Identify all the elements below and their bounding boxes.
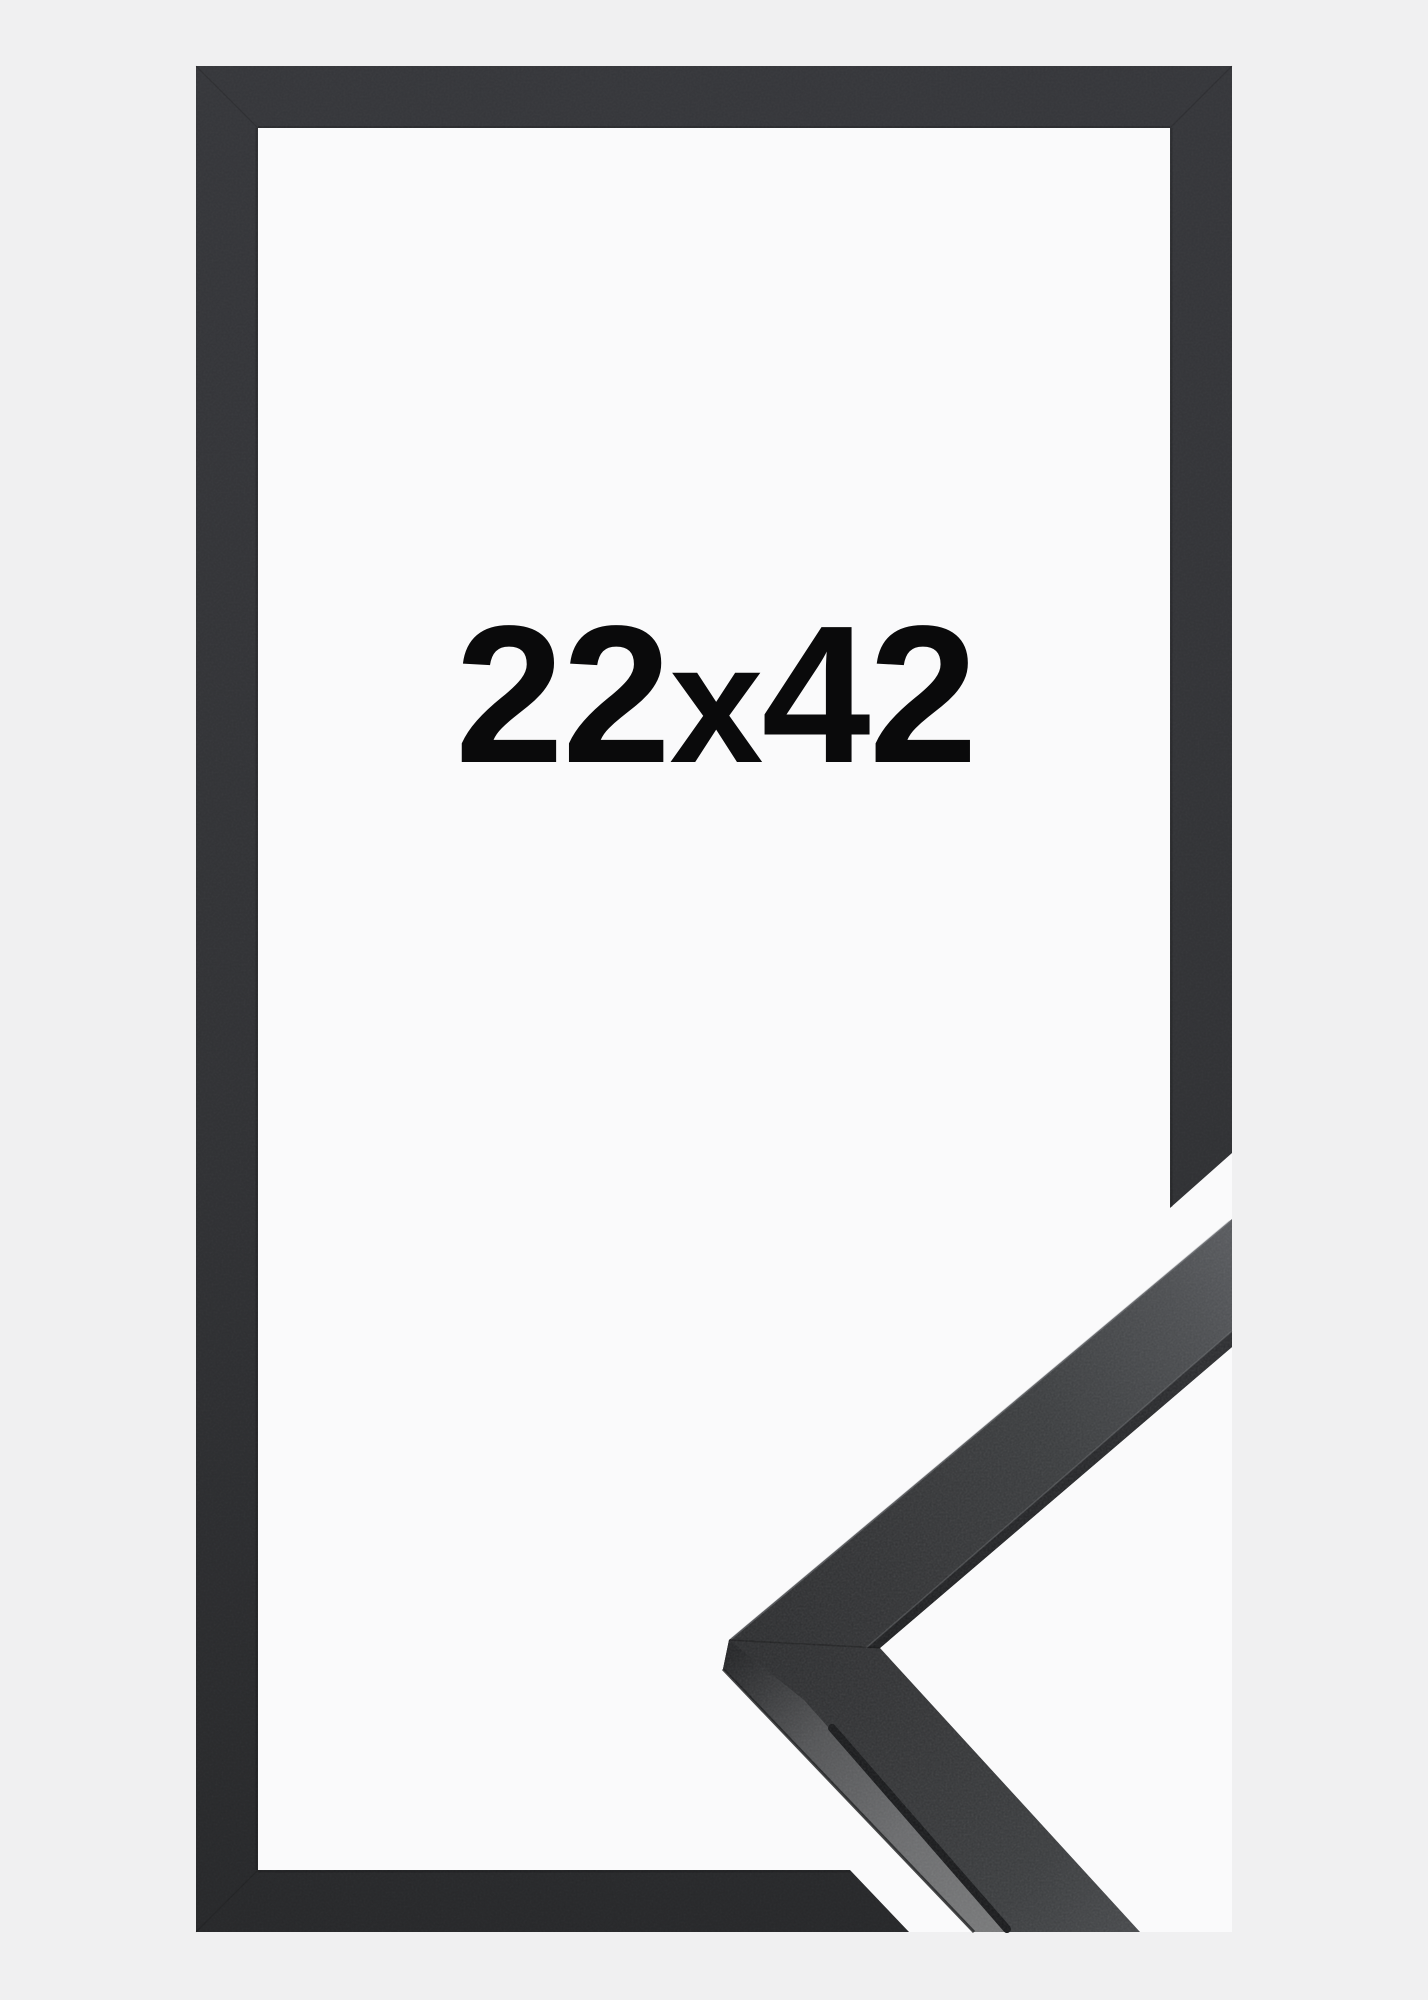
svg-text:22x42: 22x42 [455,585,976,804]
